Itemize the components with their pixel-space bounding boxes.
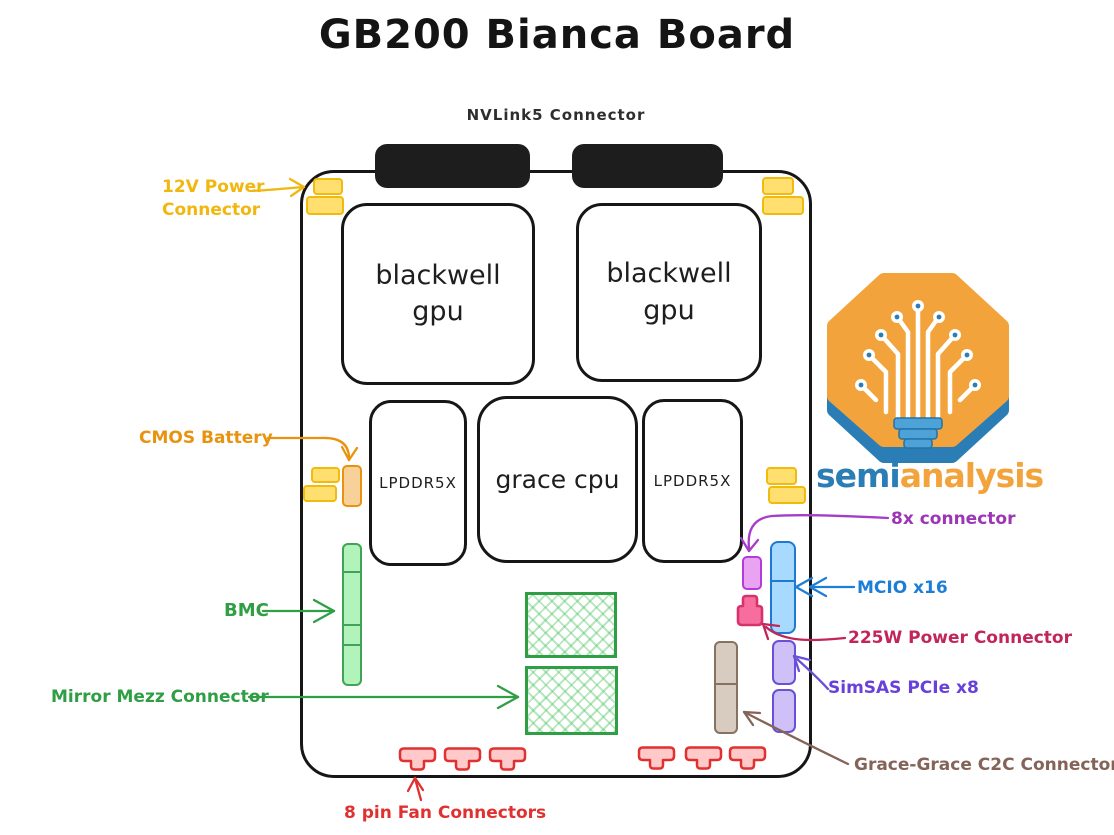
simsas-pcie-connector-2 xyxy=(772,689,796,733)
12v-power-connector-top-right-1 xyxy=(762,177,794,195)
lpddr5x-right-label: LPDDR5X xyxy=(654,472,732,490)
cmos-battery xyxy=(342,465,362,507)
fan-connector xyxy=(637,745,677,771)
power-connector-mid-right-1 xyxy=(766,467,797,485)
semianalysis-logo xyxy=(822,272,1014,468)
blackwell-gpu-right: blackwell gpu xyxy=(576,203,762,382)
12v-power-line2: Connector xyxy=(162,199,265,222)
lpddr5x-left-label: LPDDR5X xyxy=(379,474,457,492)
lpddr5x-right: LPDDR5X xyxy=(642,399,743,563)
nvlink5-connector-left xyxy=(375,144,530,188)
mirror-mezz-connector-top xyxy=(525,592,617,658)
blackwell-gpu-right-label: blackwell gpu xyxy=(604,256,734,329)
grace-grace-c2c-connector xyxy=(714,641,738,734)
mcio-x16-connector xyxy=(770,541,796,634)
gb200-bianca-board-diagram: GB200 Bianca Board NVLink5 Connector bla… xyxy=(0,0,1114,835)
c2c-callout: Grace-Grace C2C Connector xyxy=(854,755,1114,775)
12v-power-line1: 12V Power xyxy=(162,176,265,199)
fan-connector xyxy=(684,745,724,771)
power-connector-mid-left-1 xyxy=(311,467,340,483)
semianalysis-wordmark: semianalysis xyxy=(816,456,1020,495)
bmc-component xyxy=(342,543,362,686)
mcio-callout: MCIO x16 xyxy=(857,578,948,598)
nvlink5-connector-label: NVLink5 Connector xyxy=(380,106,732,124)
mirror-mezz-connector-bottom xyxy=(525,666,618,735)
power-connector-mid-left-2 xyxy=(303,485,337,502)
nvlink5-connector-right xyxy=(572,144,723,188)
12v-power-connector-top-right-2 xyxy=(762,196,804,215)
fan-connector xyxy=(488,746,528,772)
grace-cpu-label: grace cpu xyxy=(496,465,620,494)
diagram-title: GB200 Bianca Board xyxy=(0,12,1114,58)
fan-connector xyxy=(398,746,438,772)
fan-connector xyxy=(728,745,768,771)
grace-cpu: grace cpu xyxy=(477,396,638,563)
wordmark-analysis: analysis xyxy=(900,456,1043,495)
cmos-battery-callout: CMOS Battery xyxy=(139,428,273,448)
mirror-mezz-callout: Mirror Mezz Connector xyxy=(51,687,269,707)
8x-connector-callout: 8x connector xyxy=(891,509,1015,529)
fan-connectors-arrow xyxy=(408,778,423,800)
simsas-pcie-connector-1 xyxy=(772,640,796,685)
8x-connector xyxy=(742,556,762,590)
wordmark-semi: semi xyxy=(816,456,900,495)
225w-power-connector xyxy=(735,594,765,628)
lpddr5x-left: LPDDR5X xyxy=(369,400,467,566)
simsas-callout: SimSAS PCIe x8 xyxy=(828,678,979,698)
blackwell-gpu-left: blackwell gpu xyxy=(341,203,535,385)
225w-power-callout: 225W Power Connector xyxy=(848,628,1072,648)
blackwell-gpu-left-label: blackwell gpu xyxy=(373,258,503,331)
power-connector-mid-right-2 xyxy=(768,486,806,504)
12v-power-connector-callout: 12V Power Connector xyxy=(162,176,265,222)
12v-power-connector-top-left-1 xyxy=(313,178,343,195)
12v-power-connector-top-left-2 xyxy=(306,196,344,215)
fan-connector xyxy=(443,746,483,772)
fan-connectors-callout: 8 pin Fan Connectors xyxy=(344,803,546,823)
bmc-callout: BMC xyxy=(224,600,269,621)
